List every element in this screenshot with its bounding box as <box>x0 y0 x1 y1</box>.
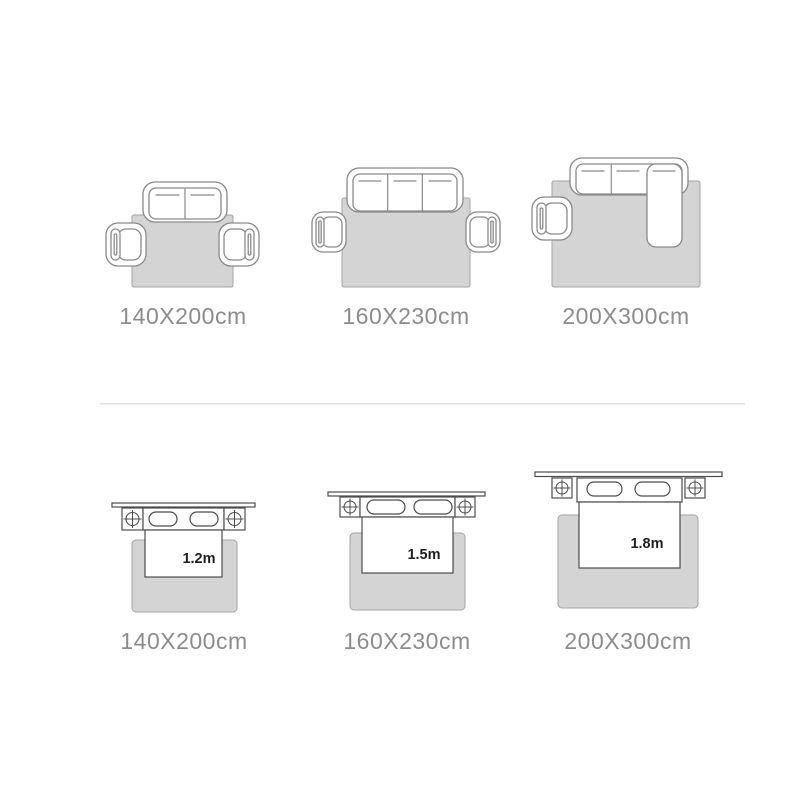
headboard-icon <box>360 497 455 517</box>
bed-rug-size-label-2: 160X230cm <box>307 628 507 655</box>
pillow-right-icon <box>414 500 452 514</box>
armchair-left-icon <box>106 223 146 266</box>
sofa-rug-figure-200x300 <box>532 158 700 287</box>
nightstand-left-icon <box>340 497 360 517</box>
bed-width-label-3: 1.8m <box>617 536 677 552</box>
sofa-rug-size-label-2: 160X230cm <box>306 303 506 330</box>
sofa-rug-size-label-1: 140X200cm <box>83 303 283 330</box>
pillow-left-icon <box>367 500 405 514</box>
bed-width-label-2: 1.5m <box>394 547 454 563</box>
bed-width-label-1: 1.2m <box>169 551 229 567</box>
rug-size-guide-image: 140X200cm 160X230cm 200X300cm 1.2m 1.5m … <box>0 0 800 800</box>
wall-line <box>535 472 722 477</box>
nightstand-right-icon <box>455 497 475 517</box>
sofa-rug-figure-140x200 <box>106 182 259 287</box>
rug-shape <box>132 215 233 287</box>
armchair-left-icon <box>312 212 346 252</box>
loveseat-sofa-icon <box>143 182 227 222</box>
armchair-right-icon <box>219 223 259 266</box>
armchair-right-icon <box>466 212 500 252</box>
row-divider <box>100 403 745 405</box>
armchair-left-icon <box>532 197 572 240</box>
bed-rug-size-label-3: 200X300cm <box>528 628 728 655</box>
nightstand-right-icon <box>685 478 705 498</box>
bed-icon <box>362 517 453 573</box>
pillow-left-icon <box>587 482 622 496</box>
sofa-rug-figure-160x230 <box>312 168 500 287</box>
wall-line <box>328 492 485 496</box>
pillow-left-icon <box>149 512 177 526</box>
pillow-right-icon <box>635 482 670 496</box>
bed-rug-size-label-1: 140X200cm <box>84 628 284 655</box>
nightstand-left-icon <box>552 478 572 498</box>
sofa-rug-size-label-3: 200X300cm <box>526 303 726 330</box>
diagram-graphics <box>0 0 800 800</box>
wall-line <box>112 503 255 507</box>
pillow-right-icon <box>190 512 218 526</box>
nightstand-left-icon <box>122 508 143 530</box>
three-seat-sofa-icon <box>347 168 463 212</box>
nightstand-right-icon <box>224 508 245 530</box>
headboard-icon <box>143 508 224 530</box>
bed-icon <box>579 502 680 568</box>
headboard-icon <box>577 478 682 502</box>
